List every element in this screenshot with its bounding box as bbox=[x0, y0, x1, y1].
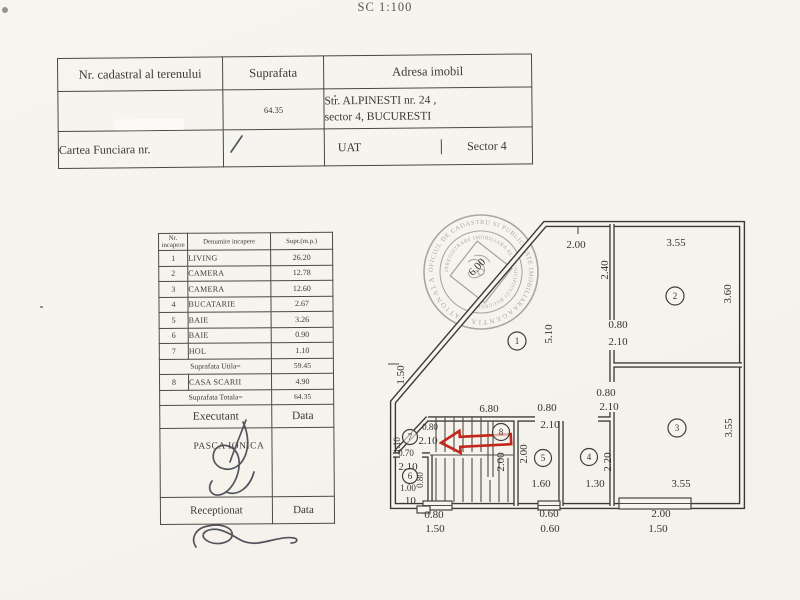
dim-label: 1.50 bbox=[395, 365, 407, 385]
dim-label: .10 bbox=[402, 495, 416, 507]
room-number: 6 bbox=[403, 469, 418, 484]
dim-label: 1.30 bbox=[585, 478, 605, 490]
svg-text:3: 3 bbox=[675, 423, 680, 433]
dim-label: 5.10 bbox=[543, 324, 555, 344]
scan-specks bbox=[2, 7, 336, 308]
dim-label: 1.50 bbox=[425, 523, 445, 535]
dim-label: 0.60 bbox=[540, 523, 560, 535]
svg-text:6: 6 bbox=[408, 471, 413, 481]
dim-label: 1.60 bbox=[531, 478, 551, 490]
svg-text:2: 2 bbox=[673, 291, 678, 301]
svg-text:1: 1 bbox=[515, 336, 520, 346]
dim-label: 0.80 bbox=[537, 402, 557, 414]
room-number: 1 bbox=[508, 332, 526, 350]
bottom-signature-scribble bbox=[194, 525, 297, 547]
dim-label: 1.00 bbox=[400, 483, 416, 493]
room-number: 8 bbox=[493, 424, 510, 441]
dim-label: 2.10 bbox=[418, 435, 438, 447]
dim-label: 2.00 bbox=[518, 444, 530, 464]
svg-text:7: 7 bbox=[408, 432, 413, 442]
executant-signature bbox=[210, 420, 254, 495]
room-number: 2 bbox=[666, 287, 684, 305]
dim-label: 6.80 bbox=[479, 403, 499, 415]
svg-text:4: 4 bbox=[587, 452, 592, 462]
dim-label: 2.00 bbox=[651, 508, 671, 520]
dim-label: 2.10 bbox=[540, 419, 560, 431]
dim-label: 0.80 bbox=[608, 319, 628, 331]
dim-label: 0.80 bbox=[424, 509, 444, 521]
dim-label: 2.10 bbox=[599, 401, 619, 413]
scanned-cadastral-document: { "scale_label": "SC 1:100", "top_table"… bbox=[0, 0, 800, 600]
dim-label: 0.80 bbox=[422, 422, 438, 432]
dim-label: 3.55 bbox=[666, 237, 686, 249]
dim-label: 2.00 bbox=[495, 452, 507, 472]
room-number: 7 bbox=[403, 430, 418, 445]
dim-label: 3.55 bbox=[723, 418, 735, 438]
dim-label: 2.10 bbox=[608, 336, 628, 348]
room-number: 5 bbox=[535, 450, 552, 467]
dim-label: 0.80 bbox=[596, 387, 616, 399]
dim-label: 0.60 bbox=[539, 508, 559, 520]
room-number: 4 bbox=[581, 449, 598, 466]
floor-plan-overlay: OFICIUL DE CADASTRU SI PUBLICITATE IMOBI… bbox=[0, 0, 800, 600]
svg-text:8: 8 bbox=[499, 427, 504, 437]
dim-label: 2.00 bbox=[566, 239, 586, 251]
dim-label: 3.60 bbox=[722, 284, 734, 304]
handwritten-slash bbox=[231, 136, 242, 152]
dim-label: 3.55 bbox=[671, 478, 691, 490]
dim-label: 2.40 bbox=[599, 260, 611, 280]
dim-label: 1.50 bbox=[648, 523, 668, 535]
dim-label: 0.70 bbox=[398, 448, 414, 458]
svg-text:5: 5 bbox=[541, 453, 546, 463]
room-number: 3 bbox=[668, 419, 686, 437]
dim-label: 2.20 bbox=[602, 452, 614, 472]
